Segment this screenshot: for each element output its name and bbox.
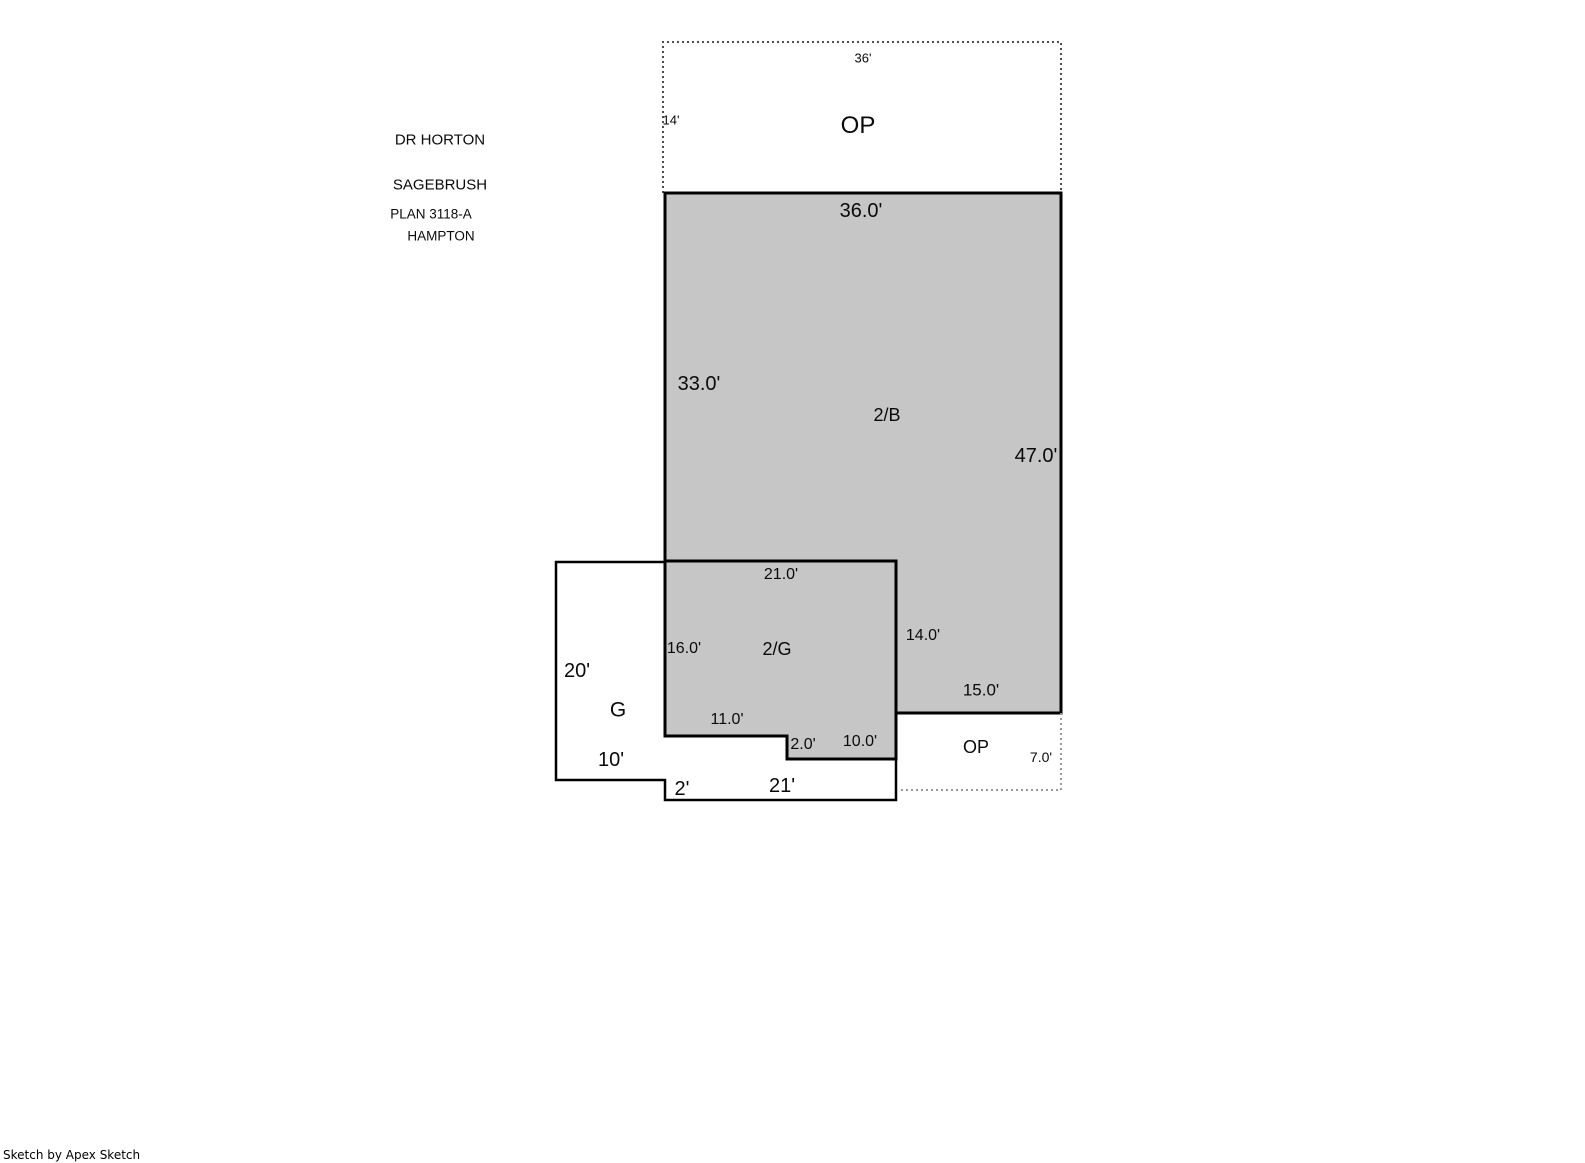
dim-op-bottom-right: 7.0' (1030, 750, 1052, 764)
dim-garage2-bottom-right: 10.0' (843, 734, 877, 750)
garage2-label: 2/G (762, 640, 791, 658)
dim-op-top-depth: 14' (663, 114, 680, 127)
op-top-label: OP (841, 114, 876, 138)
dim-garage2-top: 21.0' (764, 567, 798, 583)
dim-porch-bottom: 21' (769, 776, 795, 796)
garage-label: G (610, 700, 626, 721)
dim-floor2-bottom: 15.0' (963, 682, 999, 699)
dim-garage2-bottom: 11.0' (710, 712, 743, 728)
elevation-name: HAMPTON (407, 229, 474, 243)
second-floor-area (665, 193, 1061, 759)
floor2-label: 2/B (873, 406, 900, 424)
dim-garage2-right: 14.0' (906, 628, 940, 644)
dim-garage2-left: 16.0' (667, 641, 701, 657)
model-name: SAGEBRUSH (393, 178, 487, 193)
floorplan-sketch-page: DR HORTON SAGEBRUSH PLAN 3118-A HAMPTON … (0, 0, 1585, 1163)
plan-number: PLAN 3118-A (390, 207, 472, 221)
dim-floor2-top: 36.0' (840, 201, 883, 221)
dim-floor2-right: 47.0' (1015, 446, 1058, 466)
dim-op-top-width: 36' (855, 52, 872, 65)
op-bottom-label: OP (963, 738, 989, 756)
builder-name: DR HORTON (395, 133, 485, 148)
dim-garage2-step: 2.0' (790, 737, 815, 753)
dim-garage-left: 20' (564, 661, 590, 681)
dim-garage-bottom: 10' (598, 750, 624, 770)
dim-floor2-left: 33.0' (678, 374, 721, 394)
apex-sketch-credit: Sketch by Apex Sketch (3, 1148, 140, 1162)
dim-garage-step: 2' (675, 779, 690, 799)
